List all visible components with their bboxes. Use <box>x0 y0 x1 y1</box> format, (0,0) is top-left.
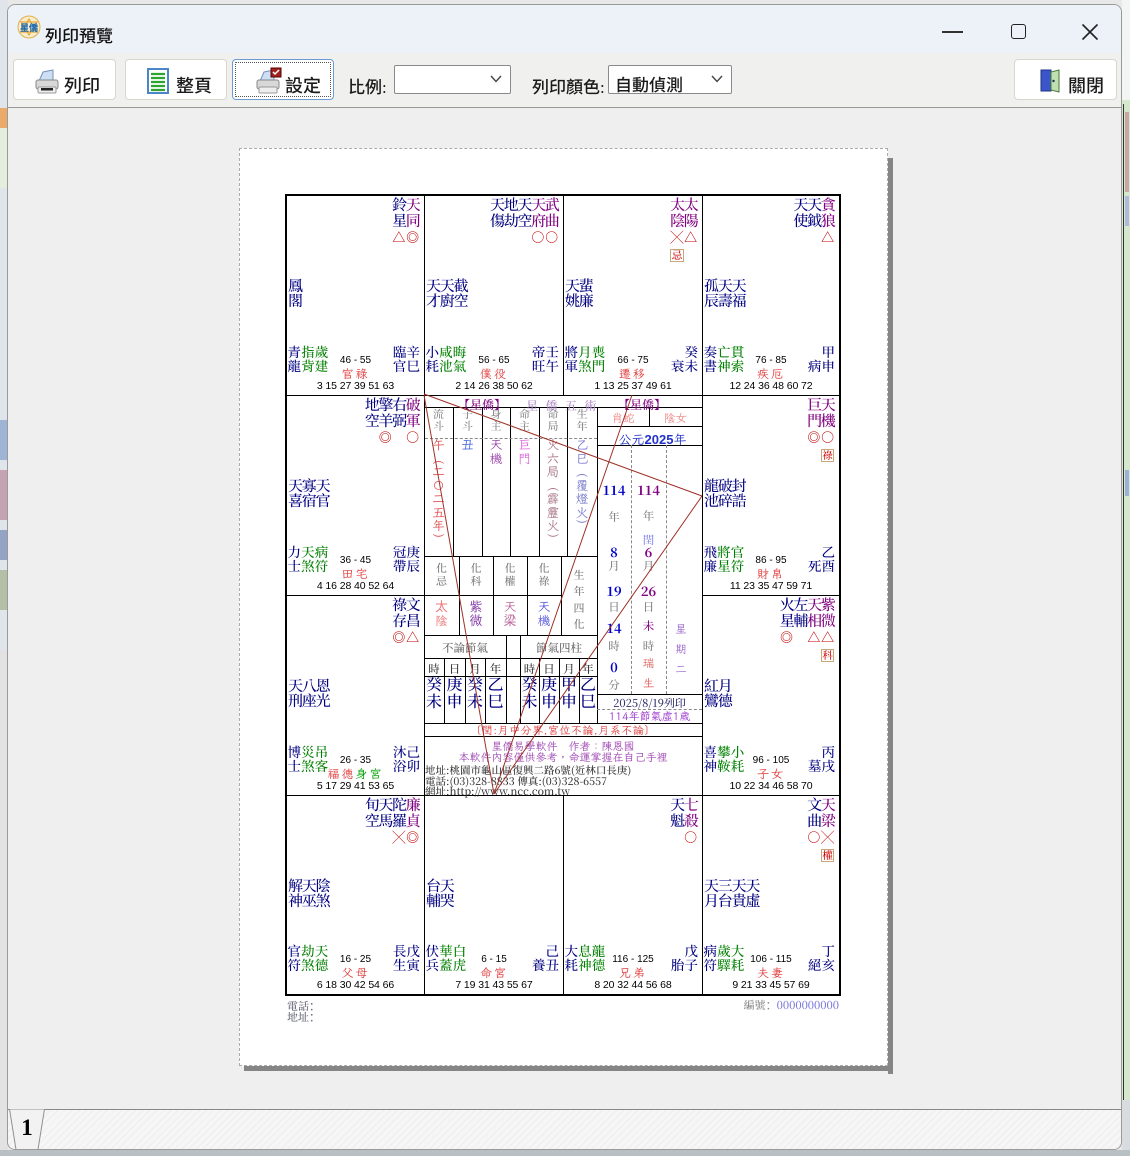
svg-text:星僑: 星僑 <box>20 21 39 34</box>
